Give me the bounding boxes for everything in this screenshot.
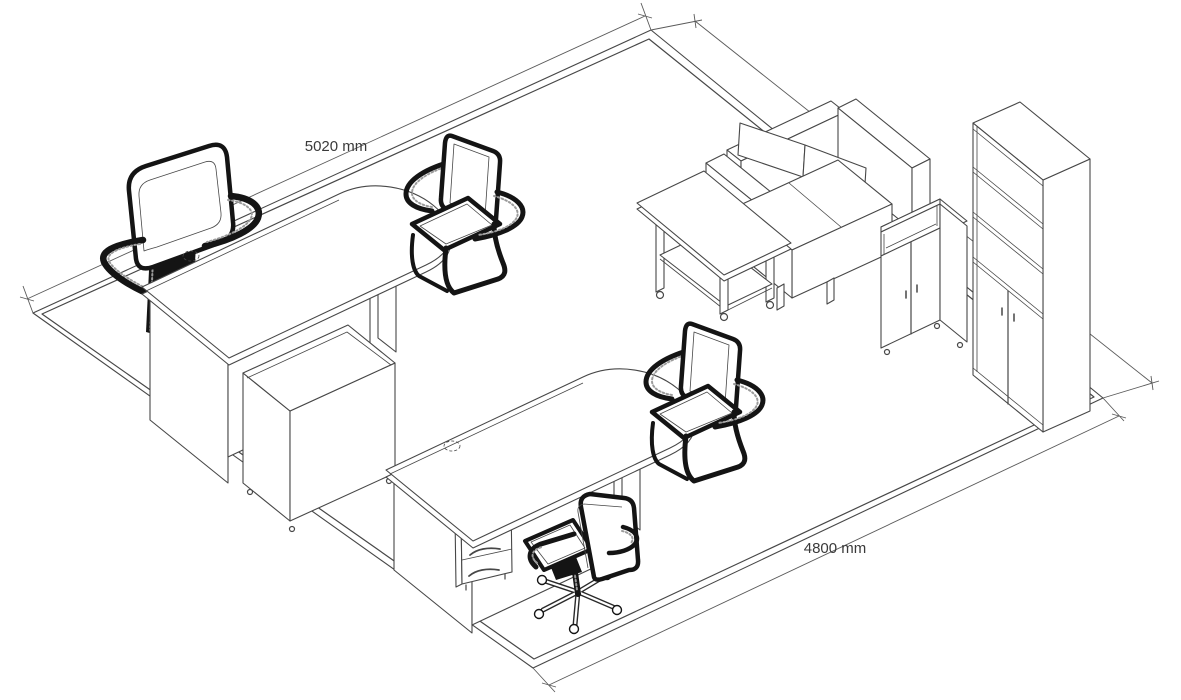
cabinet-side: [940, 204, 967, 342]
drawing-canvas: 5020 mm 4800 mm: [0, 0, 1181, 700]
bookcase: [973, 102, 1090, 432]
caster: [248, 490, 253, 495]
sofa-leg: [827, 278, 834, 304]
caster: [535, 610, 544, 619]
caster: [613, 606, 622, 615]
bookcase-side: [1043, 159, 1090, 432]
dimension-depth-label: 4800 mm: [804, 540, 867, 557]
sofa-leg: [777, 284, 784, 310]
caster: [570, 625, 579, 634]
floorplan-svg: 5020 mm 4800 mm: [0, 0, 1181, 700]
caster: [538, 576, 547, 585]
dimension-width-label: 5020 mm: [305, 138, 368, 155]
caster: [290, 527, 295, 532]
